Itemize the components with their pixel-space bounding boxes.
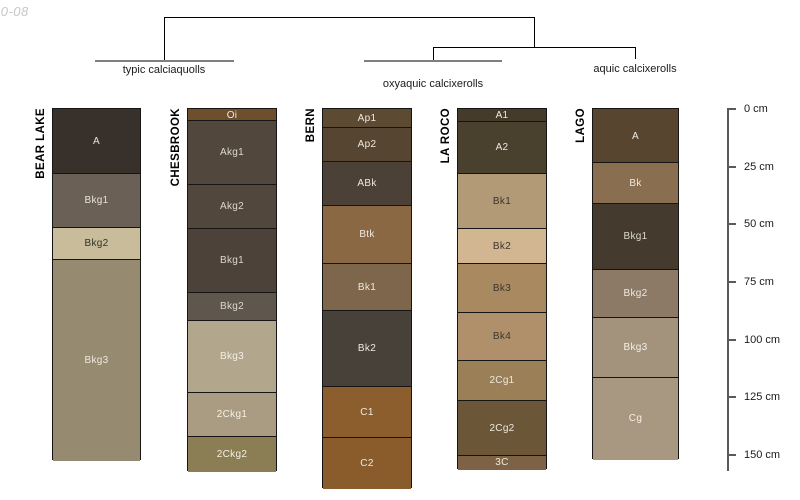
horizon-label: 2Cg1 (489, 375, 514, 386)
horizon-block: ABk (323, 161, 411, 206)
depth-axis-tick-label: 100 cm (744, 334, 780, 346)
profile-column: ABkg1Bkg2Bkg3 (52, 108, 141, 460)
horizon-label: Bkg2 (85, 238, 109, 249)
horizon-block: Bkg2 (188, 292, 276, 321)
red-triangle-marker-icon (490, 472, 512, 492)
horizon-block: 3C (458, 455, 546, 470)
depth-axis-tick (727, 166, 736, 168)
dendrogram-group-label: aquic calcixerolls (593, 63, 676, 75)
horizon-block: 2Cg1 (458, 360, 546, 401)
profile-column: A1A2Bk1Bk2Bk3Bk42Cg12Cg23C (457, 108, 547, 469)
horizon-block: C2 (323, 437, 411, 489)
horizon-label: 3C (495, 457, 508, 468)
horizon-block: Bkg2 (593, 269, 678, 318)
horizon-block: C1 (323, 386, 411, 438)
horizon-block: Bkg2 (53, 227, 140, 260)
horizon-label: 2Ckg2 (217, 449, 247, 460)
horizon-label: Btk (359, 229, 374, 240)
horizon-label: Bk2 (358, 343, 376, 354)
soil-profile-figure: 10-08 typic calciaquollsoxyaquic calcixe… (0, 0, 800, 500)
horizon-label: A2 (496, 142, 509, 153)
horizon-label: Akg2 (220, 201, 244, 212)
horizon-label: C1 (360, 407, 373, 418)
depth-axis-tick-label: 50 cm (744, 218, 774, 230)
horizon-label: A1 (496, 110, 509, 121)
horizon-block: A (53, 109, 140, 174)
depth-axis-line (727, 109, 729, 471)
horizon-block: Ap1 (323, 109, 411, 128)
horizon-block: 2Ckg1 (188, 392, 276, 437)
horizon-block: Bkg1 (593, 203, 678, 270)
horizon-label: A (93, 136, 100, 147)
dendrogram-cluster-bar (95, 60, 234, 62)
horizon-block: Cg (593, 377, 678, 460)
profile-name-label: CHESBROOK (170, 108, 182, 186)
horizon-block: 2Cg2 (458, 400, 546, 456)
horizon-block: Bkg1 (53, 173, 140, 228)
watermark-text: 10-08 (0, 4, 29, 19)
horizon-label: Bkg3 (85, 355, 109, 366)
horizon-label: Bkg1 (624, 231, 648, 242)
horizon-label: Bk3 (493, 283, 511, 294)
dendrogram-segment (164, 17, 165, 60)
horizon-block: Bkg3 (593, 317, 678, 378)
horizon-label: Bk4 (493, 331, 511, 342)
profile-name-label: LAGO (575, 108, 587, 143)
horizon-label: Bk2 (493, 241, 511, 252)
horizon-label: 2Ckg1 (217, 409, 247, 420)
dendrogram-group-label: oxyaquic calcixerolls (383, 78, 483, 90)
horizon-label: Akg1 (220, 147, 244, 158)
horizon-label: Bkg3 (220, 351, 244, 362)
depth-axis-tick-label: 150 cm (744, 449, 780, 461)
dendrogram-segment (433, 47, 635, 48)
profile-name-label: BERN (305, 108, 317, 142)
horizon-label: Ap2 (358, 139, 377, 150)
dendrogram-group-label: typic calciaquolls (123, 64, 206, 76)
horizon-label: Ap1 (358, 113, 377, 124)
profile-column: Ap1Ap2ABkBtkBk1Bk2C1C2 (322, 108, 412, 488)
depth-axis-tick (727, 223, 736, 225)
horizon-block: A (593, 109, 678, 163)
horizon-block: Bk1 (458, 173, 546, 229)
depth-axis-tick-label: 0 cm (744, 103, 768, 115)
horizon-block: Akg2 (188, 184, 276, 229)
horizon-label: Bk1 (493, 196, 511, 207)
horizon-label: Bkg1 (220, 255, 244, 266)
depth-axis-tick (727, 281, 736, 283)
depth-axis-tick (727, 396, 736, 398)
horizon-block: Btk (323, 205, 411, 264)
horizon-label: Bkg2 (220, 301, 244, 312)
horizon-block: A2 (458, 121, 546, 174)
horizon-block: 2Ckg2 (188, 436, 276, 472)
horizon-block: Bk1 (323, 263, 411, 311)
depth-axis-tick (727, 454, 736, 456)
depth-axis-tick-label: 25 cm (744, 161, 774, 173)
horizon-label: ABk (357, 178, 376, 189)
depth-axis-tick (727, 339, 736, 341)
dendrogram-cluster-bar (364, 60, 502, 62)
horizon-block: Bkg3 (53, 259, 140, 461)
profile-column: OiAkg1Akg2Bkg1Bkg2Bkg32Ckg12Ckg2 (187, 108, 277, 471)
profile-column: ABkBkg1Bkg2Bkg3Cg (592, 108, 679, 459)
horizon-block: Bk3 (458, 263, 546, 313)
horizon-label: Bkg3 (624, 342, 648, 353)
horizon-label: Bkg2 (624, 288, 648, 299)
horizon-block: Ap2 (323, 127, 411, 162)
dendrogram-segment (433, 47, 434, 60)
horizon-block: Bkg3 (188, 320, 276, 393)
depth-axis-tick (727, 108, 736, 110)
horizon-block: Bk2 (323, 310, 411, 387)
profile-name-label: LA ROCO (440, 108, 452, 163)
horizon-block: Bk4 (458, 312, 546, 361)
horizon-label: Cg (629, 413, 642, 424)
profile-name-label: BEAR LAKE (35, 108, 47, 179)
horizon-label: A (632, 131, 639, 142)
horizon-label: Bkg1 (85, 195, 109, 206)
horizon-block: Akg1 (188, 120, 276, 185)
horizon-label: 2Cg2 (489, 423, 514, 434)
horizon-block: Bkg1 (188, 228, 276, 293)
horizon-block: Bk2 (458, 228, 546, 264)
dendrogram-segment (635, 47, 636, 59)
depth-axis-tick-label: 75 cm (744, 276, 774, 288)
horizon-label: C2 (360, 458, 373, 469)
depth-axis-tick-label: 125 cm (744, 391, 780, 403)
horizon-label: Bk (629, 178, 641, 189)
dendrogram-segment (164, 17, 534, 18)
dendrogram-segment (534, 17, 535, 47)
horizon-label: Bk1 (358, 282, 376, 293)
horizon-block: Bk (593, 162, 678, 204)
